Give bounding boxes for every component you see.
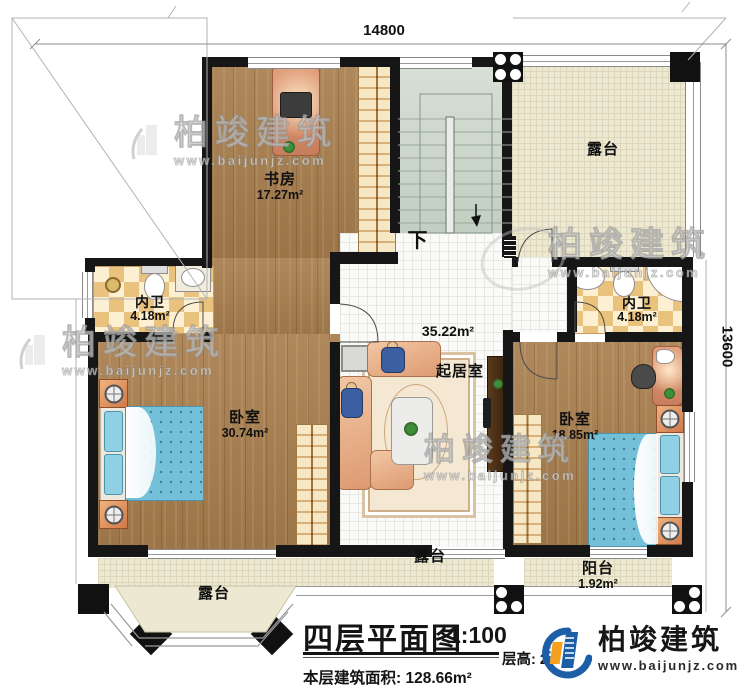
- room-label-bath-right: 内卫 4.18m²: [602, 296, 672, 325]
- room-label-terrace-top: 露台: [568, 142, 638, 159]
- room-label-terrace-mid: 露台: [398, 549, 462, 566]
- lamp-icon: [661, 522, 680, 541]
- hall-floor: [512, 257, 567, 332]
- nightstand: [99, 379, 128, 408]
- wall: [212, 57, 248, 67]
- wall: [88, 332, 173, 342]
- wall: [340, 57, 400, 67]
- bedroom-left-wardrobe: [296, 424, 328, 546]
- dimension-right: 13600: [719, 320, 736, 374]
- column: [78, 584, 109, 614]
- stairs-down-label: 下: [398, 230, 438, 252]
- toilet-icon: [613, 271, 635, 297]
- column: [672, 585, 702, 614]
- window: [82, 272, 93, 318]
- wall: [605, 332, 693, 342]
- brand-url: www.baijunjz.com: [598, 659, 739, 672]
- pillow: [660, 435, 680, 474]
- brand-building-icon: [540, 626, 592, 680]
- room-label-living-area: 35.22m²: [400, 324, 496, 339]
- wall: [88, 334, 98, 557]
- wall: [390, 67, 400, 233]
- desk-chair-icon: [631, 364, 656, 389]
- person-figure: [341, 382, 361, 416]
- window: [590, 549, 647, 559]
- stairs-floor: [398, 62, 512, 233]
- title-rule: [303, 652, 499, 655]
- wall: [647, 545, 693, 557]
- column: [493, 52, 523, 82]
- room-label-bedroom-right: 卧室 18.85m²: [525, 412, 625, 442]
- person-figure: [381, 341, 403, 371]
- dimension-top: 14800: [352, 22, 416, 39]
- window: [400, 57, 472, 69]
- column: [670, 52, 700, 82]
- shower-icon: [105, 277, 121, 293]
- window: [684, 412, 695, 482]
- nightstand: [656, 405, 684, 433]
- bed-sheet: [634, 434, 658, 544]
- brand-name: 柏竣建筑: [598, 626, 739, 654]
- wall: [503, 545, 590, 557]
- lamp-icon: [104, 384, 123, 403]
- floor-area-text: 本层建筑面积: 128.66m²: [303, 666, 472, 688]
- watermark-building-icon: [16, 329, 54, 375]
- wall: [503, 330, 513, 545]
- brand-logo: 柏竣建筑 www.baijunjz.com: [540, 626, 739, 680]
- desk-lamp-icon: [656, 349, 675, 364]
- wall: [557, 332, 575, 342]
- wall: [502, 67, 512, 257]
- wall: [276, 545, 340, 557]
- window: [148, 549, 276, 559]
- plant-icon: [493, 379, 503, 389]
- wall: [203, 332, 212, 342]
- wall: [330, 342, 340, 545]
- terrace-right-eave: [685, 62, 701, 257]
- floorplan-canvas: 14800 13600 书房 17.27m² 内卫 4.18m² 内卫 4.18…: [0, 0, 750, 692]
- flower-vase-icon: [404, 422, 418, 436]
- wall: [513, 332, 520, 342]
- wall: [202, 57, 212, 268]
- column: [130, 613, 172, 655]
- title-rule-thin: [303, 657, 499, 658]
- room-label-bedroom-left: 卧室 30.74m²: [195, 410, 295, 440]
- door-frame: [504, 236, 516, 258]
- tv-icon: [483, 398, 491, 428]
- wall: [512, 257, 518, 267]
- plant-icon: [664, 388, 675, 399]
- wall: [88, 545, 148, 557]
- room-label-terrace-bay: 露台: [182, 586, 246, 603]
- corridor-floor: [212, 258, 330, 340]
- column: [251, 613, 293, 655]
- wall: [85, 258, 212, 266]
- pillow: [104, 454, 123, 495]
- terrace-top-railing: [518, 55, 685, 67]
- nightstand: [656, 517, 684, 545]
- wall: [85, 258, 95, 272]
- terrace-railing: [296, 586, 494, 596]
- end-table: [341, 345, 370, 372]
- watermark-building-icon: [128, 119, 166, 165]
- plan-scale: 1:100: [448, 622, 507, 649]
- terrace-top-floor: [512, 65, 685, 257]
- plant-icon: [283, 141, 295, 153]
- wall: [682, 257, 693, 412]
- lamp-icon: [104, 505, 123, 524]
- nightstand: [99, 500, 128, 529]
- room-label-bath-left: 内卫 4.18m²: [115, 295, 185, 324]
- wall: [330, 252, 398, 264]
- pillow: [660, 476, 680, 515]
- computer-monitor-icon: [280, 92, 312, 118]
- room-label-study: 书房 17.27m²: [230, 172, 330, 202]
- room-label-living: 起居室: [415, 364, 505, 381]
- wall: [567, 265, 577, 332]
- lamp-icon: [661, 410, 680, 429]
- room-label-balcony: 阳台 1.92m²: [566, 561, 630, 591]
- pillow: [104, 411, 123, 452]
- column: [494, 585, 524, 614]
- window: [248, 57, 340, 69]
- sink-icon: [181, 268, 205, 287]
